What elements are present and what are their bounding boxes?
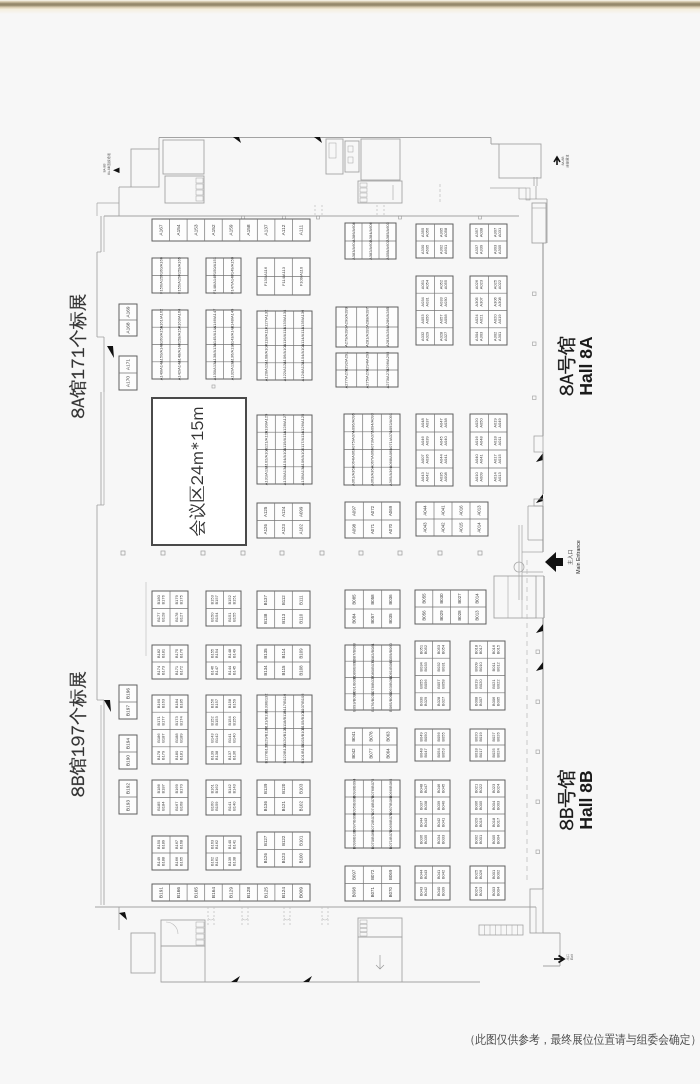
svg-text:A132/A133: A132/A133 (230, 360, 235, 381)
svg-text:A111: A111 (299, 224, 305, 235)
svg-text:B181: B181 (160, 648, 165, 658)
svg-text:B157: B157 (214, 594, 219, 604)
svg-text:B074/B073: B074/B073 (370, 795, 375, 816)
svg-text:B028: B028 (457, 610, 462, 621)
svg-text:A041: A041 (443, 454, 448, 464)
svg-text:B064: B064 (386, 748, 391, 759)
svg-text:B100: B100 (299, 853, 304, 864)
svg-text:A275/A276: A275/A276 (364, 368, 369, 389)
svg-text:A158/A157: A158/A157 (176, 325, 181, 346)
svg-text:B085: B085 (352, 594, 357, 605)
svg-text:B076/B075: B076/B075 (370, 778, 375, 799)
svg-text:A021: A021 (479, 314, 484, 324)
svg-text:B007: B007 (478, 696, 483, 706)
svg-text:F109/A110: F109/A110 (298, 266, 303, 286)
svg-text:A102: A102 (299, 524, 304, 535)
svg-text:B055: B055 (441, 732, 446, 742)
svg-text:A054: A054 (425, 279, 430, 289)
svg-text:A022: A022 (497, 279, 502, 289)
svg-text:B069: B069 (388, 869, 393, 880)
svg-text:B159: B159 (232, 698, 237, 708)
svg-text:F160/A166: F160/A166 (158, 256, 163, 276)
svg-text:B035: B035 (388, 613, 393, 624)
svg-text:B029: B029 (423, 696, 428, 706)
svg-text:B115: B115 (281, 665, 286, 675)
svg-text:B165: B165 (193, 887, 199, 899)
svg-text:B176: B176 (160, 594, 165, 604)
svg-text:A016: A016 (458, 505, 463, 516)
svg-text:B193: B193 (126, 800, 132, 812)
svg-text:B097: B097 (352, 869, 357, 880)
svg-text:B154: B154 (214, 612, 219, 622)
svg-text:B109: B109 (299, 648, 304, 659)
svg-text:B019: B019 (478, 817, 483, 827)
svg-text:B177: B177 (160, 715, 165, 725)
svg-text:Hall 8A: Hall 8A (576, 336, 596, 396)
svg-text:A160/A159: A160/A159 (158, 325, 163, 346)
svg-text:A027: A027 (443, 331, 448, 341)
svg-text:A058: A058 (443, 314, 448, 324)
svg-text:F148/A149: F148/A149 (212, 274, 217, 294)
svg-text:A135/A136: A135/A136 (300, 465, 305, 486)
svg-text:A056: A056 (425, 314, 430, 324)
svg-text:A058: A058 (443, 227, 448, 237)
svg-text:B036: B036 (388, 594, 393, 605)
svg-text:Main Entrance: Main Entrance (576, 540, 582, 574)
svg-text:B188: B188 (160, 856, 165, 866)
svg-text:A383/A604: A383/A604 (351, 239, 356, 260)
svg-text:A308: A308 (497, 296, 502, 306)
svg-text:A288/A287: A288/A287 (364, 306, 369, 327)
svg-text:A098: A098 (352, 523, 357, 534)
svg-text:A013: A013 (476, 505, 481, 516)
svg-text:B127: B127 (178, 612, 183, 622)
svg-text:B027: B027 (441, 696, 446, 706)
svg-text:A102/A103: A102/A103 (263, 447, 268, 468)
svg-text:A039: A039 (425, 436, 430, 446)
svg-text:B033: B033 (423, 661, 428, 671)
svg-text:B153: B153 (214, 715, 219, 725)
svg-text:F150/A151: F150/A151 (212, 256, 217, 276)
svg-text:A135/A136: A135/A136 (300, 309, 305, 330)
svg-text:B024: B024 (496, 783, 501, 793)
svg-text:B147: B147 (214, 665, 219, 675)
svg-text:A136/A135: A136/A135 (230, 342, 235, 363)
svg-text:A127/A132: A127/A132 (263, 309, 268, 330)
svg-text:A167: A167 (158, 224, 164, 236)
svg-text:B149: B149 (232, 648, 237, 658)
svg-text:A123: A123 (281, 524, 286, 535)
svg-text:B017: B017 (478, 644, 483, 654)
svg-text:B162: B162 (214, 783, 219, 793)
svg-text:B134: B134 (263, 665, 268, 676)
svg-text:B126: B126 (263, 853, 268, 864)
svg-text:B047: B047 (423, 783, 428, 793)
svg-text:A019: A019 (497, 314, 502, 324)
svg-text:A168: A168 (126, 322, 132, 334)
svg-text:B003: B003 (496, 800, 501, 810)
svg-text:B017: B017 (478, 748, 483, 758)
svg-text:B093/B094: B093/B094 (351, 778, 356, 799)
svg-text:B113: B113 (281, 613, 286, 623)
svg-text:B005: B005 (496, 696, 501, 706)
svg-text:B070/B069: B070/B069 (370, 829, 375, 850)
svg-text:B173: B173 (160, 665, 165, 675)
svg-text:B165: B165 (178, 856, 183, 866)
svg-text:A386/A608: A386/A608 (351, 221, 356, 242)
svg-text:B056: B056 (421, 610, 426, 621)
svg-text:B019: B019 (478, 732, 483, 742)
svg-text:B189: B189 (160, 839, 165, 849)
svg-text:B192: B192 (126, 783, 132, 795)
svg-text:B120: B120 (281, 783, 286, 794)
svg-text:B125: B125 (264, 887, 270, 899)
svg-text:A055: A055 (443, 279, 448, 289)
svg-text:A130/A131: A130/A131 (212, 360, 217, 381)
svg-text:A048: A048 (479, 436, 484, 446)
svg-text:B159: B159 (214, 801, 219, 811)
svg-text:F130/A116: F130/A116 (263, 266, 268, 286)
svg-text:B101: B101 (299, 835, 304, 846)
svg-text:A148/A149: A148/A149 (230, 308, 235, 329)
svg-text:B015: B015 (496, 644, 501, 654)
svg-text:A161/A162: A161/A162 (158, 308, 163, 329)
svg-text:A163/A164: A163/A164 (176, 308, 181, 329)
svg-text:B181: B181 (178, 750, 183, 760)
svg-text:B058: B058 (441, 679, 446, 689)
svg-text:A273/A274: A273/A274 (385, 368, 390, 389)
svg-text:B168: B168 (178, 839, 183, 849)
svg-text:B127: B127 (263, 835, 268, 846)
svg-text:B103: B103 (299, 783, 304, 794)
svg-text:A305: A305 (497, 244, 502, 254)
svg-text:B038: B038 (423, 800, 428, 810)
svg-text:B002: B002 (496, 869, 501, 879)
svg-text:B095/B096: B095/B096 (351, 795, 356, 816)
svg-text:B138: B138 (263, 613, 268, 624)
svg-text:F159/A165: F159/A165 (176, 256, 181, 276)
svg-text:B024: B024 (496, 748, 501, 758)
svg-text:B009: B009 (299, 887, 305, 899)
svg-text:A075/A074: A075/A074 (351, 430, 356, 451)
svg-text:A106/A107: A106/A107 (300, 447, 305, 468)
svg-text:A133/A134: A133/A134 (282, 465, 287, 486)
svg-text:B045: B045 (441, 783, 446, 793)
svg-text:B151: B151 (232, 594, 237, 604)
svg-text:B004: B004 (496, 834, 501, 844)
svg-text:Exit: Exit (570, 954, 574, 960)
svg-text:F147/A148: F147/A148 (230, 274, 235, 294)
svg-text:B042: B042 (423, 886, 428, 896)
svg-text:A601: A601 (443, 244, 448, 254)
svg-text:B114: B114 (281, 648, 286, 658)
svg-text:A070: A070 (388, 523, 393, 534)
svg-text:B014: B014 (475, 593, 480, 604)
svg-text:A292/A291: A292/A291 (344, 351, 349, 372)
svg-text:A286/A285: A286/A285 (385, 306, 390, 327)
svg-text:B155: B155 (232, 715, 237, 725)
svg-text:A116/A115: A116/A115 (282, 327, 287, 347)
svg-text:A013: A013 (497, 472, 502, 482)
svg-text:B168: B168 (178, 801, 183, 811)
svg-text:A112: A112 (281, 224, 287, 235)
svg-text:A138/A139: A138/A139 (212, 342, 217, 363)
svg-text:B122/B123: B122/B123 (282, 743, 287, 764)
svg-text:A171: A171 (126, 359, 132, 371)
svg-text:A143/A142: A143/A142 (230, 325, 235, 346)
svg-text:A365/A366: A365/A366 (388, 465, 393, 486)
svg-text:B001: B001 (478, 834, 483, 844)
svg-text:B110: B110 (299, 613, 304, 623)
svg-text:B012: B012 (496, 661, 501, 671)
svg-text:A037: A037 (425, 418, 430, 428)
svg-text:A124: A124 (281, 506, 286, 517)
svg-text:B163: B163 (160, 698, 165, 708)
svg-text:B101/B100: B101/B100 (300, 743, 305, 764)
svg-text:B035: B035 (423, 834, 428, 844)
svg-text:B129: B129 (229, 887, 235, 899)
svg-text:B194: B194 (126, 738, 132, 750)
svg-text:F155/A154: F155/A154 (176, 274, 181, 294)
svg-text:B128: B128 (160, 612, 165, 622)
svg-text:A014: A014 (476, 522, 481, 533)
svg-text:B187: B187 (160, 783, 165, 793)
svg-text:A092/A091: A092/A091 (388, 412, 393, 433)
svg-text:A119/A118: A119/A118 (282, 431, 287, 451)
svg-text:B078: B078 (368, 731, 373, 742)
svg-text:A384/A606: A384/A606 (368, 221, 373, 242)
svg-text:B042: B042 (351, 748, 356, 759)
svg-text:B191: B191 (158, 887, 164, 899)
svg-text:B138: B138 (232, 856, 237, 866)
svg-text:B029: B029 (439, 610, 444, 621)
svg-text:A030: A030 (443, 296, 448, 306)
svg-text:B172: B172 (178, 665, 183, 675)
svg-text:A303: A303 (479, 331, 484, 341)
svg-text:B179: B179 (160, 750, 165, 760)
svg-text:A142/A143: A142/A143 (176, 360, 181, 381)
svg-text:A050: A050 (479, 418, 484, 428)
svg-text:A071/A070: A071/A070 (388, 430, 393, 451)
svg-text:A104/A105: A104/A105 (282, 447, 287, 468)
svg-text:B108: B108 (299, 665, 304, 676)
svg-text:A148/A147: A148/A147 (176, 342, 181, 363)
svg-text:B093/B094: B093/B094 (351, 691, 356, 712)
svg-text:Hall 8B: Hall 8B (576, 770, 596, 829)
svg-text:B071/B072: B071/B072 (388, 829, 393, 850)
svg-text:B105/B104: B105/B104 (300, 709, 305, 730)
svg-text:B058: B058 (370, 594, 375, 605)
svg-text:A114/A113: A114/A113 (300, 327, 305, 347)
svg-text:A118/A117: A118/A117 (263, 327, 268, 347)
svg-text:A108/A107: A108/A107 (263, 343, 268, 364)
svg-text:A071: A071 (370, 523, 375, 534)
svg-text:A041: A041 (440, 505, 445, 516)
svg-text:B017: B017 (496, 817, 501, 827)
svg-text:A023: A023 (479, 279, 484, 289)
svg-text:A097: A097 (352, 505, 357, 516)
svg-text:B154: B154 (214, 648, 219, 658)
svg-text:B196: B196 (126, 688, 132, 700)
svg-text:B185: B185 (178, 698, 183, 708)
svg-text:A363/A364: A363/A364 (369, 465, 374, 486)
svg-text:B020: B020 (478, 679, 483, 689)
svg-text:B071: B071 (370, 887, 375, 898)
svg-text:B072/B071: B072/B071 (370, 812, 375, 833)
svg-text:B139: B139 (263, 783, 268, 794)
svg-text:A104/A103: A104/A103 (300, 343, 305, 364)
svg-text:B141: B141 (232, 839, 237, 849)
svg-text:A154: A154 (176, 224, 182, 236)
svg-text:F114/A113: F114/A113 (281, 266, 286, 286)
svg-text:B040: B040 (441, 800, 446, 810)
svg-text:B117/B116: B117/B116 (282, 693, 287, 713)
svg-text:B145: B145 (232, 665, 237, 675)
svg-text:A133/A134: A133/A134 (282, 309, 287, 330)
svg-text:B066/B065: B066/B065 (388, 778, 393, 799)
svg-text:A126: A126 (263, 524, 268, 535)
svg-text:A145/A144: A145/A144 (212, 325, 217, 346)
svg-text:B098: B098 (352, 887, 357, 898)
svg-text:B124: B124 (281, 887, 287, 899)
svg-text:B097/B098: B097/B098 (351, 812, 356, 833)
svg-text:B042: B042 (441, 869, 446, 879)
svg-text:A096/A095: A096/A095 (351, 412, 356, 433)
svg-text:A073/A072: A073/A072 (369, 430, 374, 451)
svg-text:B140: B140 (232, 801, 237, 811)
svg-text:A140/A141: A140/A141 (158, 360, 163, 381)
svg-text:A361/A362: A361/A362 (351, 465, 356, 486)
svg-text:B140: B140 (232, 733, 237, 743)
svg-text:A131/A132: A131/A132 (263, 465, 268, 486)
svg-text:B043: B043 (423, 817, 428, 827)
svg-text:A064/A063: A064/A063 (351, 448, 356, 469)
svg-text:A120/A121: A120/A121 (263, 361, 268, 382)
svg-text:B184: B184 (160, 801, 165, 811)
svg-text:B052: B052 (423, 644, 428, 654)
svg-text:A011: A011 (497, 436, 502, 446)
svg-text:A277/A278: A277/A278 (344, 368, 349, 389)
svg-text:B053: B053 (441, 748, 446, 758)
svg-text:A128/A127: A128/A127 (282, 413, 287, 434)
svg-text:A015: A015 (458, 522, 463, 533)
svg-text:B041: B041 (441, 817, 446, 827)
svg-text:A382/A605: A382/A605 (368, 239, 373, 260)
svg-text:B142: B142 (214, 733, 219, 743)
svg-text:B137: B137 (263, 595, 268, 606)
svg-text:A339: A339 (479, 244, 484, 254)
svg-text:B099/B100: B099/B100 (351, 829, 356, 850)
svg-text:A130/A129: A130/A129 (263, 413, 268, 434)
svg-text:A159: A159 (229, 224, 235, 236)
svg-text:B022: B022 (496, 679, 501, 689)
svg-text:B033: B033 (441, 834, 446, 844)
svg-text:B121: B121 (281, 801, 286, 812)
svg-text:A099: A099 (299, 506, 304, 517)
svg-text:A125: A125 (263, 506, 268, 517)
svg-text:B135: B135 (263, 648, 268, 659)
svg-text:B065/B066: B065/B066 (388, 691, 393, 712)
svg-text:B128: B128 (246, 887, 252, 899)
svg-text:A307: A307 (479, 296, 484, 306)
svg-text:B076/B075: B076/B075 (370, 691, 375, 712)
svg-text:B189: B189 (178, 733, 183, 743)
svg-text:B162: B162 (214, 839, 219, 849)
svg-text:A122/A123: A122/A123 (282, 361, 287, 382)
svg-text:A279/A280: A279/A280 (344, 326, 349, 347)
svg-text:A301: A301 (497, 331, 502, 341)
svg-text:B041: B041 (351, 731, 356, 742)
svg-text:A044: A044 (422, 505, 427, 516)
svg-text:B170: B170 (178, 783, 183, 793)
svg-text:B157: B157 (214, 698, 219, 708)
svg-text:B122: B122 (281, 835, 286, 846)
svg-text:B030: B030 (439, 593, 444, 604)
svg-text:B102: B102 (299, 801, 304, 812)
svg-text:B111: B111 (299, 595, 304, 605)
svg-text:A031: A031 (497, 227, 502, 237)
svg-text:B136: B136 (232, 750, 237, 760)
svg-text:B055: B055 (421, 593, 426, 604)
svg-text:B031: B031 (441, 661, 446, 671)
svg-text:B136: B136 (263, 801, 268, 812)
svg-text:A106/A105: A106/A105 (282, 343, 287, 364)
svg-text:B026: B026 (478, 869, 483, 879)
svg-text:A043: A043 (422, 522, 427, 533)
svg-text:B050: B050 (423, 732, 428, 742)
svg-text:A036: A036 (425, 454, 430, 464)
svg-text:F156/A155: F156/A155 (158, 274, 163, 294)
svg-text:A049: A049 (497, 418, 502, 428)
svg-text:B175: B175 (178, 594, 183, 604)
svg-text:B054: B054 (441, 644, 446, 654)
svg-text:A153: A153 (193, 224, 199, 236)
svg-text:A605: A605 (425, 244, 430, 254)
svg-text:B190: B190 (126, 755, 132, 767)
svg-text:B022: B022 (478, 783, 483, 793)
svg-text:A121/A120: A121/A120 (263, 430, 268, 451)
svg-text:B047: B047 (423, 748, 428, 758)
svg-text:B155: B155 (232, 612, 237, 622)
svg-text:A029: A029 (425, 331, 430, 341)
svg-text:B004: B004 (496, 886, 501, 896)
svg-text:A385/A603: A385/A603 (385, 221, 390, 242)
svg-text:B013: B013 (475, 610, 480, 621)
svg-text:B057: B057 (370, 613, 375, 624)
svg-text:B176: B176 (178, 648, 183, 658)
svg-text:A072: A072 (370, 505, 375, 516)
svg-text:A067/A066: A067/A066 (369, 448, 374, 469)
svg-text:B187: B187 (160, 733, 165, 743)
svg-text:B166: B166 (176, 887, 182, 899)
svg-text:A283/A284: A283/A284 (385, 326, 390, 347)
svg-text:A041: A041 (479, 454, 484, 464)
svg-text:A169: A169 (126, 306, 132, 318)
svg-text:A281/A282: A281/A282 (364, 326, 369, 347)
svg-text:B039: B039 (441, 886, 446, 896)
svg-text:B197: B197 (126, 705, 132, 717)
svg-text:A290/A289: A290/A289 (344, 306, 349, 327)
svg-text:B112: B112 (281, 595, 286, 605)
svg-text:B056: B056 (423, 679, 428, 689)
svg-text:B138: B138 (214, 750, 219, 760)
svg-text:A042: A042 (440, 522, 445, 533)
svg-text:B069/B070: B069/B070 (388, 812, 393, 833)
svg-text:B084: B084 (352, 613, 357, 624)
svg-text:B070: B070 (388, 887, 393, 898)
svg-text:B143: B143 (232, 783, 237, 793)
svg-text:A158: A158 (246, 224, 252, 236)
